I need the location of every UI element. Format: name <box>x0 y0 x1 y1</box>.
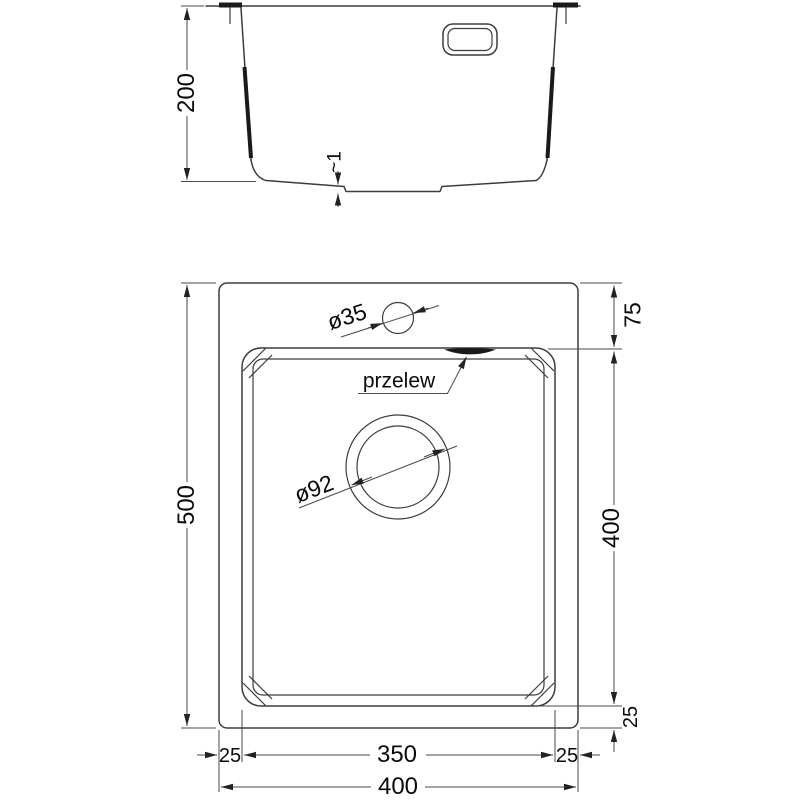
top-offset-75-label: 75 <box>621 299 646 331</box>
overflow-slot <box>444 348 496 354</box>
drawing-canvas: 200 ~1 500 75 400 25 ø35 przelew ø92 25 … <box>0 0 800 800</box>
right-wall-pad <box>548 67 554 158</box>
bowl-profile <box>241 8 557 192</box>
bowl-rim-outer <box>242 348 555 706</box>
section-view <box>181 3 580 208</box>
overflow-label: przelew <box>360 370 438 393</box>
bowl-width-350-label: 350 <box>374 742 420 768</box>
bowl-rim-inner <box>253 359 544 695</box>
left-rim-bracket <box>219 3 242 8</box>
left-wall-pad <box>245 67 252 158</box>
drain-hole <box>357 426 439 508</box>
bottom-thickness-label: ~1 <box>325 148 346 176</box>
right-rim-bracket <box>553 3 578 8</box>
right-margin-25-label: 25 <box>553 745 581 767</box>
bowl-height-400-label: 400 <box>599 505 625 551</box>
drawing-lines <box>0 0 800 800</box>
bowl-bottom-offset-25-label: 25 <box>620 703 642 731</box>
faucet-hole <box>383 303 414 334</box>
total-height-500-label: 500 <box>174 482 200 528</box>
drain-flange <box>346 415 450 519</box>
plan-view <box>181 283 622 792</box>
total-width-400-label: 400 <box>375 774 421 800</box>
depth-200-label: 200 <box>174 70 200 116</box>
overflow-opening-inner <box>448 29 492 51</box>
sink-outline <box>219 283 578 728</box>
left-margin-25-label: 25 <box>216 745 244 767</box>
bowl-corner-facets <box>243 348 554 706</box>
